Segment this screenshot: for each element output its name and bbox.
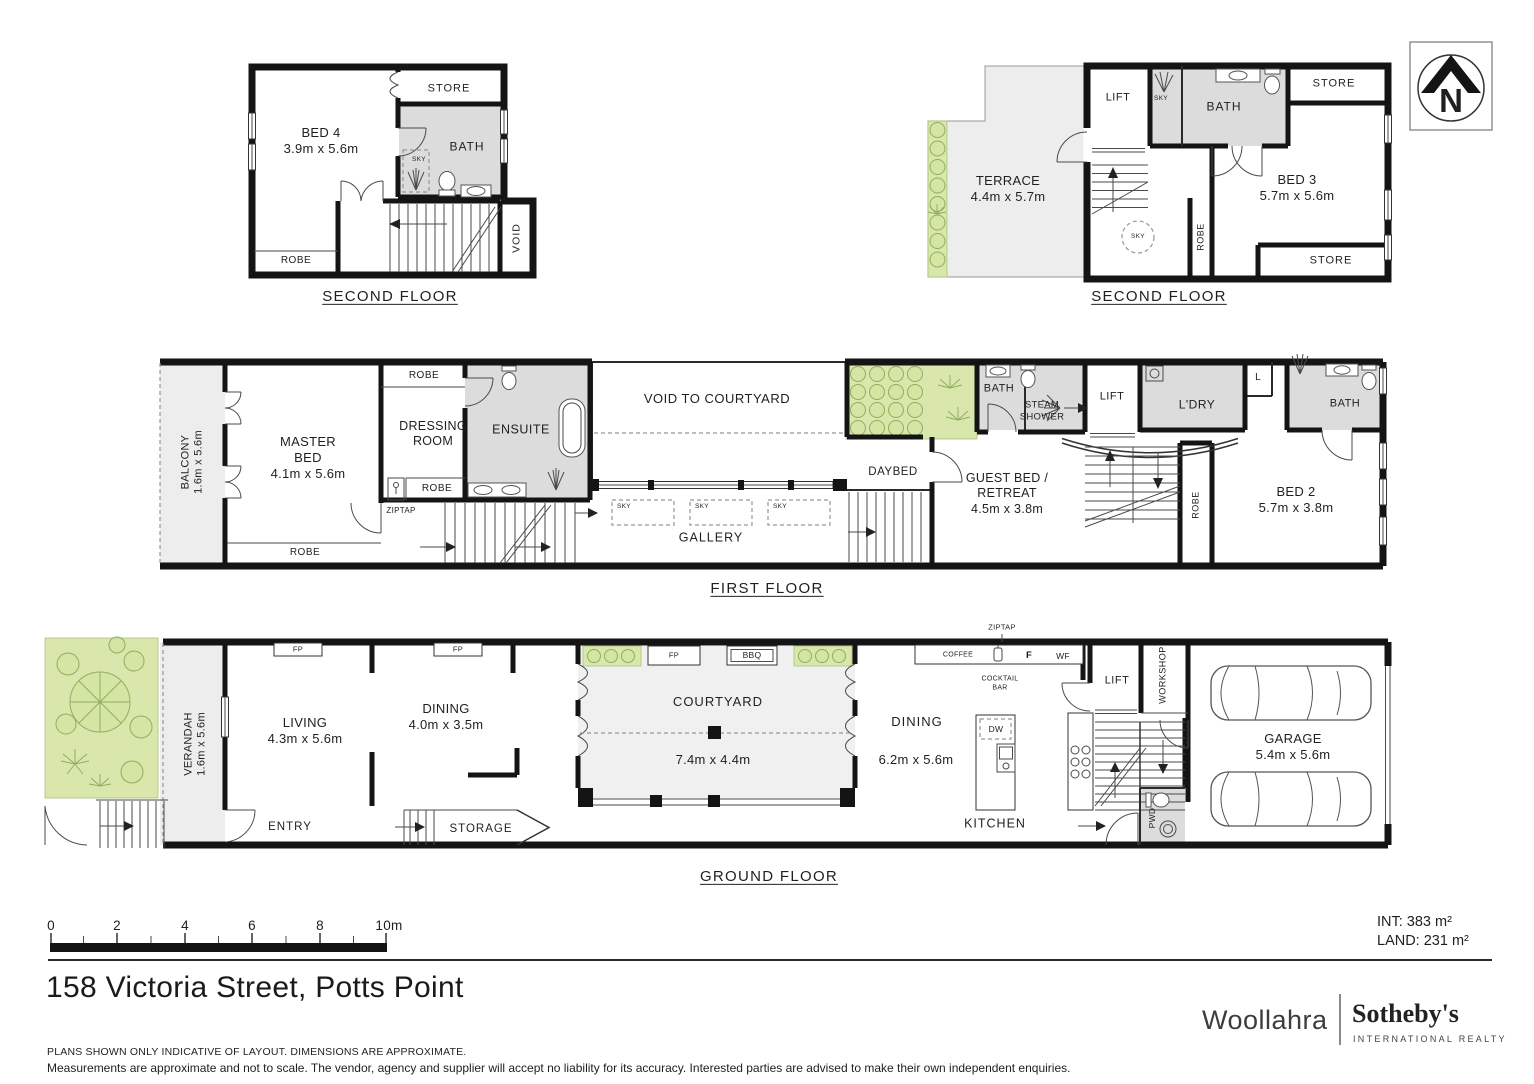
room-pwd: PWD [1147, 808, 1157, 829]
courtyard-floor [578, 646, 855, 798]
basin-icon [1326, 364, 1358, 376]
logo-tagline: INTERNATIONAL REALTY [1353, 1034, 1507, 1044]
label-ziptap: ZIPTAP [386, 506, 415, 516]
car-icon [1211, 666, 1371, 720]
floor-title-second-right: SECOND FLOOR [1091, 288, 1227, 306]
ziptap-fixture [388, 478, 404, 500]
entry-door [225, 810, 255, 842]
room-entry: ENTRY [268, 820, 312, 834]
room-store-bottom: STORE [1310, 254, 1353, 267]
room-bath2: BATH [1330, 397, 1361, 410]
label-cocktail-bar: COCKTAIL BAR [982, 675, 1019, 692]
room-robe-top: ROBE [409, 370, 439, 382]
logo-brand: Woollahra [1202, 1005, 1328, 1036]
room-robe-bottom: ROBE [290, 547, 320, 559]
floor-title-first: FIRST FLOOR [710, 580, 823, 598]
floor-title-second-left: SECOND FLOOR [322, 288, 458, 306]
front-window [222, 697, 229, 737]
room-guest-bed: GUEST BED / RETREAT 4.5m x 3.8m [966, 471, 1048, 517]
stove-icon [1068, 713, 1093, 810]
label-sky: SKY [412, 156, 426, 164]
room-dining1: DINING 4.0m x 3.5m [409, 701, 484, 733]
scale-tick-10m: 10m [375, 918, 402, 934]
page-title: 158 Victoria Street, Potts Point [46, 971, 464, 1005]
room-bath: BATH [1206, 100, 1241, 115]
room-dining2-dim: 6.2m x 5.6m [879, 752, 954, 768]
room-verandah: VERANDAH 1.6m x 5.6m [183, 712, 210, 776]
logo-name: Sotheby's [1352, 999, 1459, 1029]
stairs [389, 204, 501, 272]
label-sky2: SKY [1131, 233, 1145, 241]
disclaimer-line1: PLANS SHOWN ONLY INDICATIVE OF LAYOUT. D… [47, 1046, 466, 1058]
scale-bar [40, 915, 400, 960]
label-wf: WF [1056, 651, 1070, 661]
stairs-left [420, 503, 598, 563]
terrace-floor [928, 66, 1087, 277]
label-ziptap: ZIPTAP [988, 622, 1016, 631]
scale-tick-6: 6 [248, 918, 256, 934]
label-fridge: F [1026, 650, 1032, 662]
room-garage: GARAGE 5.4m x 5.6m [1256, 731, 1331, 763]
toilet-icon [1021, 365, 1035, 388]
room-courtyard-dim: 7.4m x 4.4m [676, 752, 751, 768]
label-sky3: SKY [773, 503, 787, 511]
courtyard-column [708, 726, 721, 739]
room-bath: BATH [449, 140, 484, 155]
room-master-bed: MASTER BED 4.1m x 5.6m [271, 434, 346, 482]
stairs-daybed [848, 492, 921, 562]
room-bed4: BED 4 3.9m x 5.6m [284, 125, 359, 157]
room-laundry: L'DRY [1179, 398, 1216, 413]
car-icon [1211, 772, 1371, 826]
scale-tick-8: 8 [316, 918, 324, 934]
room-void: VOID [511, 223, 524, 253]
room-lift: LIFT [1106, 91, 1131, 104]
garage-door [1384, 666, 1392, 824]
scale-tick-2: 2 [113, 918, 121, 934]
bathtub-icon [559, 399, 585, 457]
room-robe-mid: ROBE [422, 483, 452, 495]
toilet-icon [502, 366, 516, 390]
room-linen: L [1255, 372, 1261, 384]
garden-stairs [45, 800, 168, 848]
stairs [1092, 165, 1148, 214]
room-workshop: WORKSHOP [1158, 646, 1169, 704]
room-lift: LIFT [1105, 674, 1130, 687]
room-terrace: TERRACE 4.4m x 5.7m [971, 173, 1046, 205]
floorplan-page: N 0 2 4 6 8 10m BED 4 3.9m x 5.6m STORE … [0, 0, 1534, 1084]
label-sky1: SKY [617, 503, 631, 511]
label-bbq: BBQ [743, 650, 762, 660]
toilet-icon [1146, 793, 1169, 807]
scale-tick-0: 0 [47, 918, 55, 934]
label-dw: DW [989, 724, 1004, 734]
room-bed2: BED 2 5.7m x 3.8m [1259, 484, 1334, 516]
label-sky: SKY [1154, 95, 1168, 103]
room-dining2: DINING [891, 714, 943, 730]
room-bed3: BED 3 5.7m x 5.6m [1260, 172, 1335, 204]
sky-rects [612, 500, 830, 525]
label-fp3: FP [669, 650, 679, 659]
area-int: INT: 383 m² [1377, 914, 1452, 930]
floor-title-ground: GROUND FLOOR [700, 868, 838, 886]
label-coffee: COFFEE [943, 652, 973, 661]
toilet-icon [1362, 365, 1376, 390]
room-gallery: GALLERY [679, 530, 743, 545]
room-storage: STORAGE [449, 822, 512, 836]
label-fp1: FP [293, 644, 303, 653]
room-steam-shower: STEAM SHOWER [1020, 399, 1065, 422]
room-bath1: BATH [984, 382, 1015, 395]
toilet-icon [439, 172, 455, 197]
label-sky2: SKY [695, 503, 709, 511]
room-daybed: DAYBED [868, 465, 917, 479]
terrace-door-opening [1084, 128, 1091, 162]
room-store: STORE [428, 82, 471, 95]
room-living: LIVING 4.3m x 5.6m [268, 715, 343, 747]
room-robe: ROBE [1196, 223, 1207, 251]
room-lift: LIFT [1100, 390, 1125, 403]
area-land: LAND: 231 m² [1377, 933, 1469, 949]
basin-icon [1216, 69, 1260, 82]
disclaimer-line2: Measurements are approximate and not to … [47, 1061, 1070, 1075]
logo-divider [1339, 994, 1341, 1045]
basin-icon [986, 365, 1010, 377]
basin-icon [468, 483, 526, 497]
basin-icon [461, 185, 491, 197]
gallery-window-band [590, 479, 847, 491]
label-fp2: FP [453, 644, 463, 653]
room-dressing: DRESSING ROOM [399, 419, 467, 450]
robe-lines [227, 387, 465, 543]
room-void-courtyard: VOID TO COURTYARD [644, 391, 790, 407]
room-robe: ROBE [281, 255, 311, 267]
room-ensuite: ENSUITE [492, 422, 550, 437]
plan-ground-floor [36, 611, 1395, 860]
scale-tick-4: 4 [181, 918, 189, 934]
room-kitchen: KITCHEN [964, 816, 1026, 831]
footer-divider [48, 959, 1492, 961]
room-robe-right: ROBE [1191, 491, 1202, 519]
room-store-top: STORE [1313, 77, 1356, 90]
toilet-icon [1265, 69, 1281, 94]
north-letter: N [1439, 81, 1463, 121]
room-balcony: BALCONY 1.6m x 5.6m [180, 430, 207, 494]
room-courtyard: COURTYARD [673, 694, 763, 710]
